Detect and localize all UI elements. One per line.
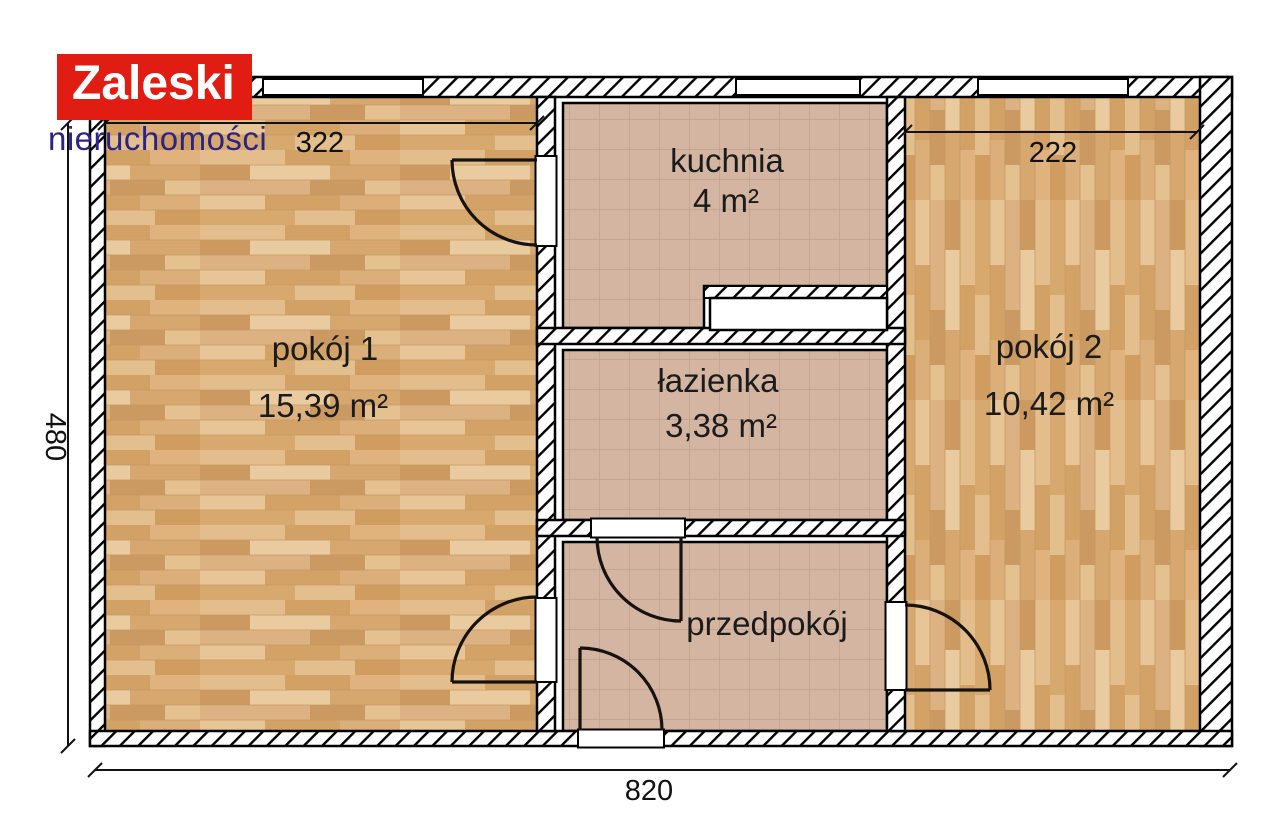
window-pokoj1 xyxy=(263,79,423,95)
room-area-lazienka: 3,38 m² xyxy=(665,407,777,444)
room-label-pokoj2: pokój 2 xyxy=(996,328,1102,365)
dimension-label-322: 322 xyxy=(296,127,344,159)
opening-entry xyxy=(578,730,664,748)
window-pokoj2 xyxy=(978,79,1128,95)
floor-plan-page: 322 222 480 820 pokój 1 15,39 m² kuchnia… xyxy=(0,0,1280,828)
wall-right xyxy=(1200,77,1232,746)
room-area-pokoj1: 15,39 m² xyxy=(258,387,388,424)
room-label-lazienka: łazienka xyxy=(657,362,779,399)
dimension-label-820: 820 xyxy=(625,775,673,807)
opening-pokoj1-przedpokoj xyxy=(536,598,557,682)
wall-kuchnia-notch xyxy=(704,286,887,298)
kuchnia-recess xyxy=(710,298,887,330)
dimension-label-480: 480 xyxy=(39,413,71,461)
brand-subtitle: nieruchomości xyxy=(48,122,267,155)
brand-logo-box: Zaleski xyxy=(57,54,252,120)
brand-logo: Zaleski nieruchomości xyxy=(57,54,267,155)
room-label-kuchnia: kuchnia xyxy=(670,142,784,179)
room-area-pokoj2: 10,42 m² xyxy=(984,385,1114,422)
opening-pokoj1-kuchnia xyxy=(536,156,557,246)
room-label-pokoj1: pokój 1 xyxy=(272,330,378,367)
wall-left xyxy=(90,77,105,746)
opening-przedpokoj-pokoj2 xyxy=(886,602,907,690)
room-area-kuchnia: 4 m² xyxy=(693,182,759,219)
room-label-przedpokoj: przedpokój xyxy=(686,605,847,642)
opening-lazienka-przedpokoj xyxy=(591,519,685,538)
brand-name: Zaleski xyxy=(72,57,235,110)
dimension-label-222: 222 xyxy=(1029,137,1077,169)
window-kuchnia xyxy=(736,79,860,95)
